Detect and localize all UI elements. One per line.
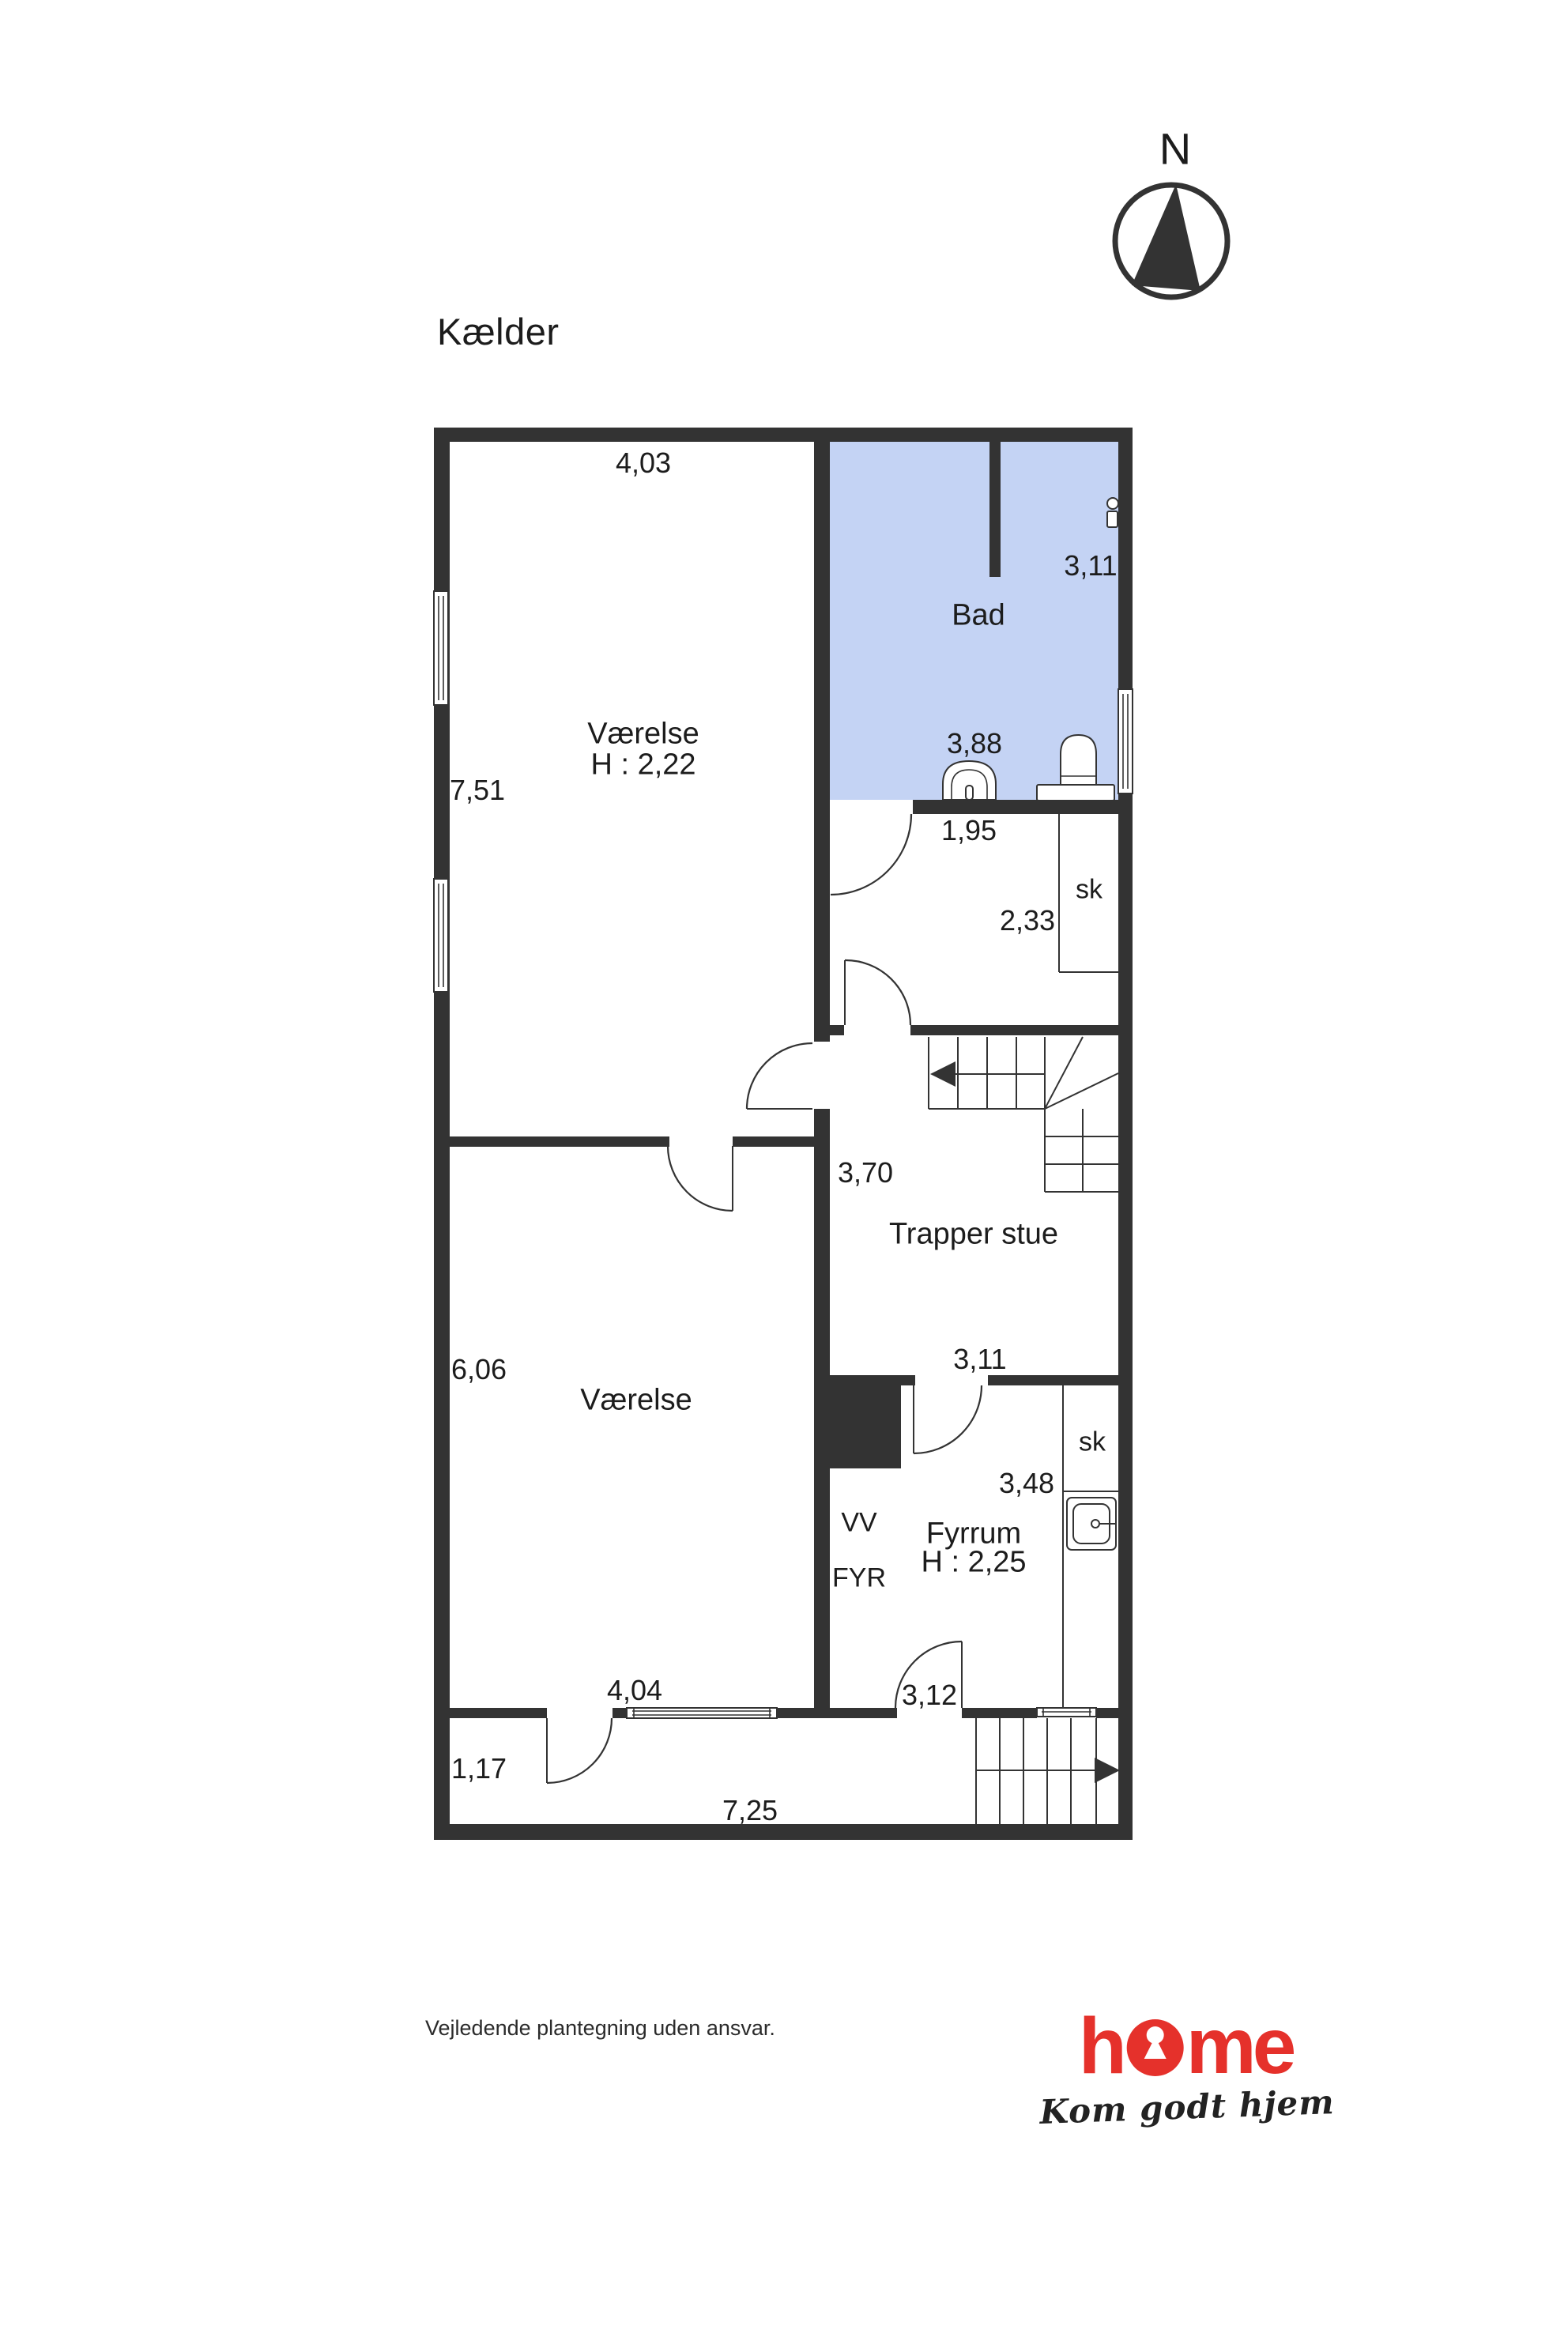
home-logo: hme [1079, 2015, 1293, 2077]
keyhole-icon [1127, 2019, 1184, 2076]
measure-corridor-length: 7,25 [722, 1794, 778, 1827]
room-label-bad: Bad [952, 599, 1005, 633]
window-left-2 [434, 879, 448, 992]
door-swing-corridor [547, 1718, 612, 1783]
wall-top [434, 428, 1133, 442]
wall-mid-left [450, 1136, 669, 1147]
window-right-bath [1118, 689, 1133, 793]
unit-label-vv: VV [841, 1508, 876, 1539]
room-label-vaerelse1: Værelse [587, 718, 699, 752]
measure-room2-height: 6,06 [451, 1353, 507, 1386]
measure-room2-width: 4,04 [607, 1674, 662, 1707]
wall-bath-bottom [913, 800, 1118, 814]
home-logo-text-post: me [1186, 2015, 1293, 2077]
measure-bath-length: 3,88 [947, 727, 1002, 760]
closet-label-fyrrum: sk [1079, 1427, 1106, 1458]
washbasin-icon [943, 761, 996, 800]
room-label-trapper-stue: Trapper stue [889, 1218, 1058, 1252]
unit-label-fyr: FYR [832, 1563, 886, 1594]
door-swing-room1 [747, 1043, 812, 1109]
floorplan-drawing [0, 0, 1568, 2352]
stairs-icon-upper [929, 1037, 1118, 1192]
chimney-block [829, 1385, 901, 1468]
measure-trapper-width: 3,70 [838, 1156, 893, 1189]
home-logo-wordmark: hme [1079, 2015, 1293, 2077]
wall-hall-bottom-left [822, 1025, 844, 1035]
wall-fyrrum-top-right [988, 1375, 1118, 1385]
wall-bath-divider [989, 442, 1001, 577]
north-compass-icon [1115, 184, 1227, 297]
ceiling-height-fyrrum: H : 2,25 [921, 1546, 1026, 1580]
shower-mixer-icon [1107, 498, 1118, 527]
wall-corridor-3 [777, 1708, 897, 1718]
wall-mid-right [733, 1136, 814, 1147]
window-stairwell [1037, 1708, 1096, 1717]
door-swing-hall-stairs [845, 960, 910, 1025]
wall-right [1118, 428, 1133, 1840]
measure-corridor-height: 1,17 [451, 1752, 507, 1785]
door-swing-room2 [668, 1146, 733, 1211]
measure-hall-width: 1,95 [941, 814, 997, 847]
stairs-exit-arrow-icon [1095, 1758, 1120, 1783]
window-left-1 [434, 591, 448, 705]
measure-fyrrum-length: 3,12 [902, 1679, 957, 1712]
measure-bath-width: 3,11 [1064, 549, 1117, 582]
disclaimer-text: Vejledende plantegning uden ansvar. [425, 2016, 775, 2041]
ceiling-height-vaerelse1: H : 2,22 [590, 748, 695, 782]
home-logo-text-pre: h [1079, 2015, 1123, 2077]
stairs-up-arrow-icon [930, 1061, 955, 1087]
measure-fyrrum-width: 3,48 [999, 1467, 1054, 1500]
floorplan-page: Kælder N 4,03 3,11 Bad Værelse H : 2,22 … [0, 0, 1568, 2352]
wall-hall-bottom-right [910, 1025, 1118, 1035]
closet-label-hall: sk [1076, 875, 1102, 906]
page-title: Kælder [437, 310, 560, 353]
window-corridor [627, 1708, 777, 1718]
room-label-vaerelse2: Værelse [580, 1384, 692, 1418]
wall-corridor-4 [962, 1708, 1037, 1718]
north-label: N [1159, 123, 1191, 175]
wall-spine-upper [814, 442, 830, 1042]
stairs-icon-lower [976, 1718, 1120, 1824]
door-swing-fyrrum-top [914, 1385, 982, 1453]
measure-hall-length: 2,33 [1000, 904, 1055, 937]
measure-trapper-length: 3,11 [953, 1343, 1006, 1376]
sink-icon [1067, 1498, 1116, 1550]
door-swing-bathroom [831, 814, 911, 895]
wall-corridor-2 [612, 1708, 627, 1718]
wall-bottom [434, 1824, 1133, 1840]
wall-corridor-5 [1096, 1708, 1118, 1718]
wall-fyrrum-top-left [830, 1375, 915, 1385]
wall-spine-lower [814, 1109, 830, 1708]
measure-top-room-width: 4,03 [616, 447, 671, 480]
wall-corridor-1 [450, 1708, 547, 1718]
measure-left-height: 7,51 [450, 774, 505, 807]
